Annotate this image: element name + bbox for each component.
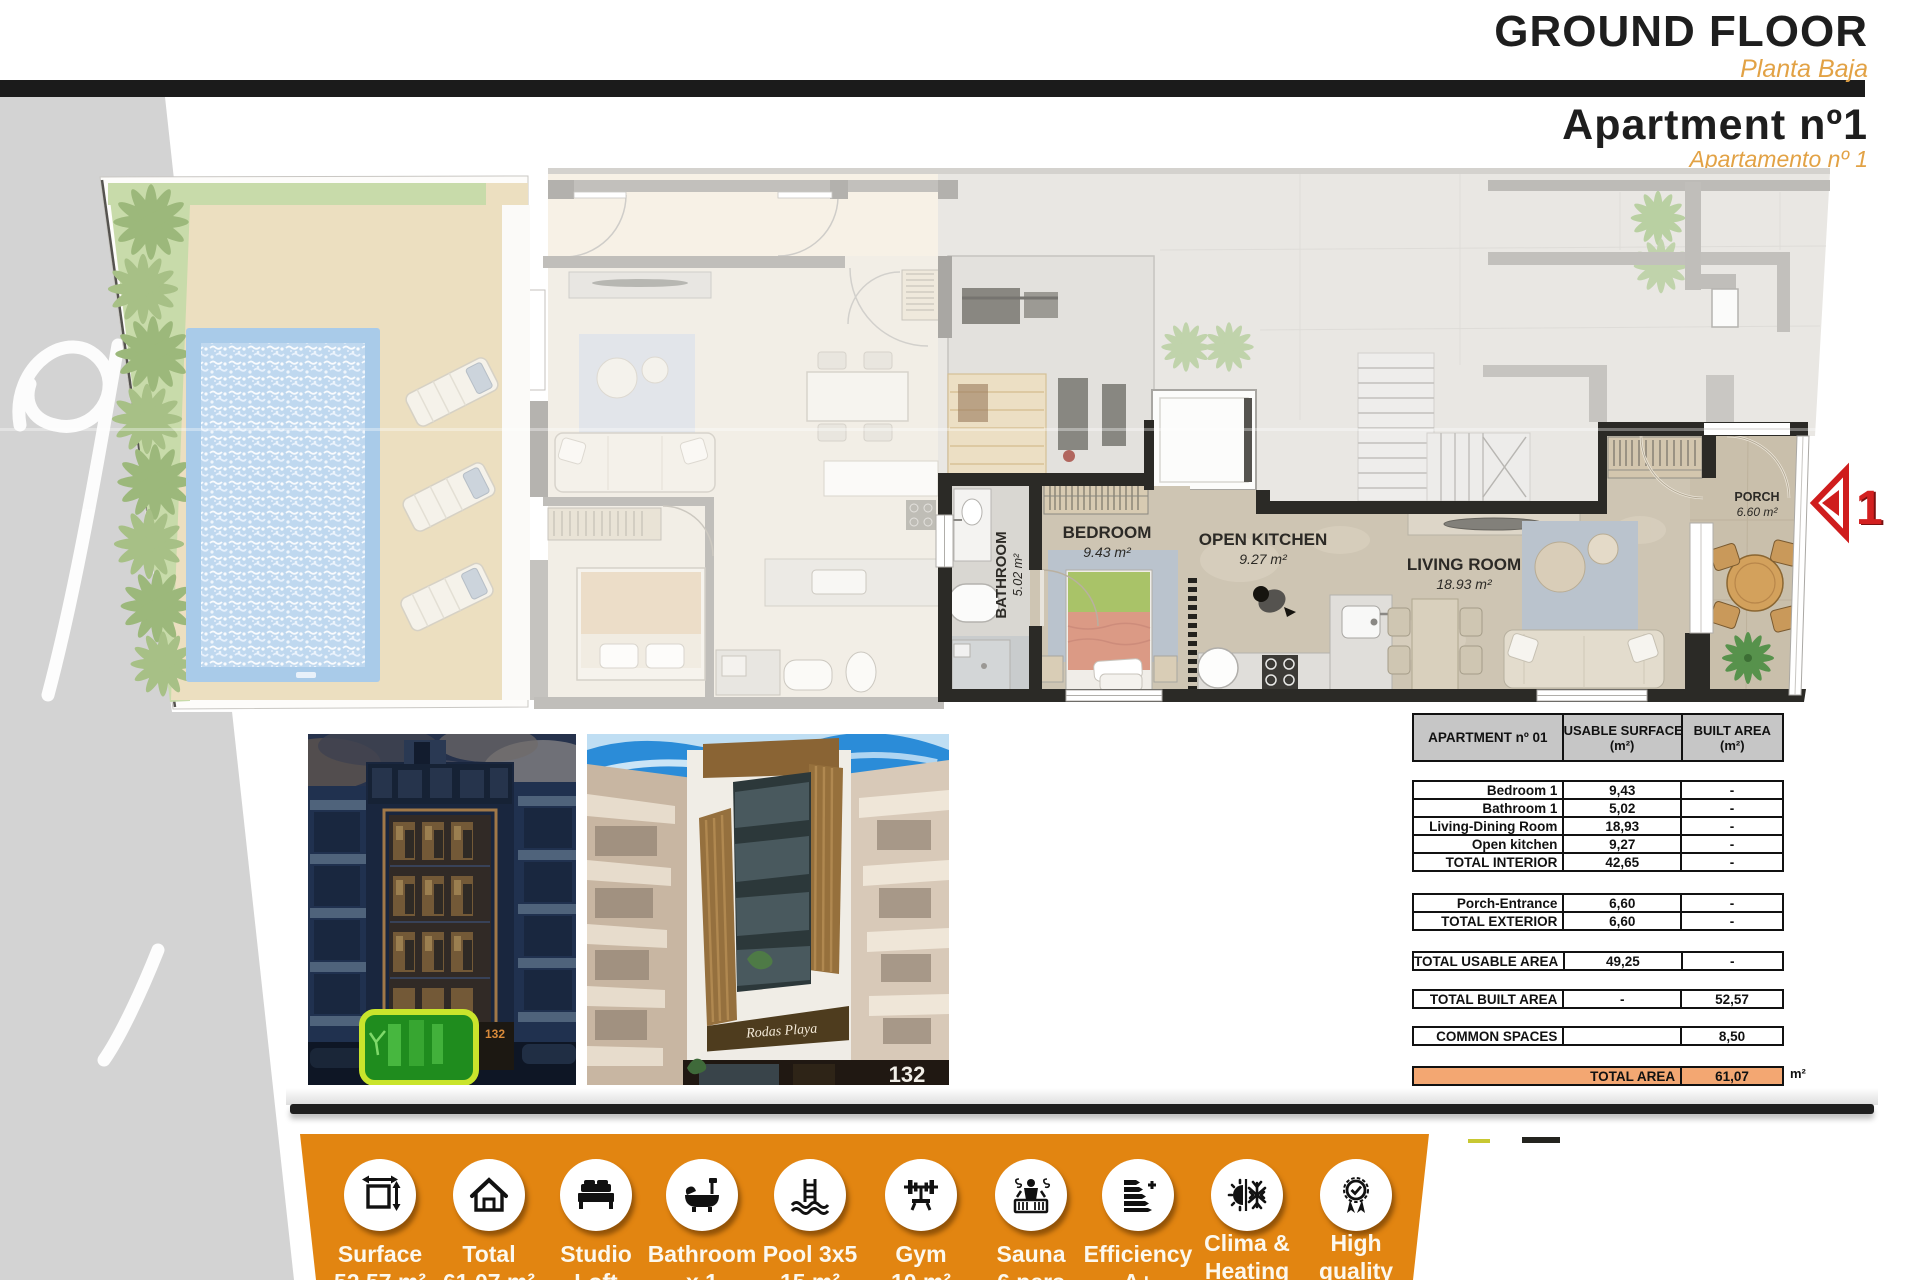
svg-text:132: 132: [485, 1027, 505, 1041]
svg-text:1: 1: [1856, 482, 1883, 535]
svg-text:5.02 m²: 5.02 m²: [1011, 553, 1025, 596]
svg-text:18.93 m²: 18.93 m²: [1436, 576, 1493, 592]
svg-text:LIVING ROOM: LIVING ROOM: [1407, 555, 1521, 574]
svg-text:9.43 m²: 9.43 m²: [1083, 544, 1132, 560]
svg-text:6.60 m²: 6.60 m²: [1737, 505, 1779, 519]
svg-text:BATHROOM: BATHROOM: [993, 531, 1010, 618]
svg-text:BEDROOM: BEDROOM: [1063, 523, 1152, 542]
svg-text:9.27 m²: 9.27 m²: [1239, 551, 1288, 567]
svg-text:OPEN KITCHEN: OPEN KITCHEN: [1199, 530, 1327, 549]
svg-text:PORCH: PORCH: [1734, 490, 1779, 504]
svg-text:132: 132: [889, 1062, 926, 1085]
